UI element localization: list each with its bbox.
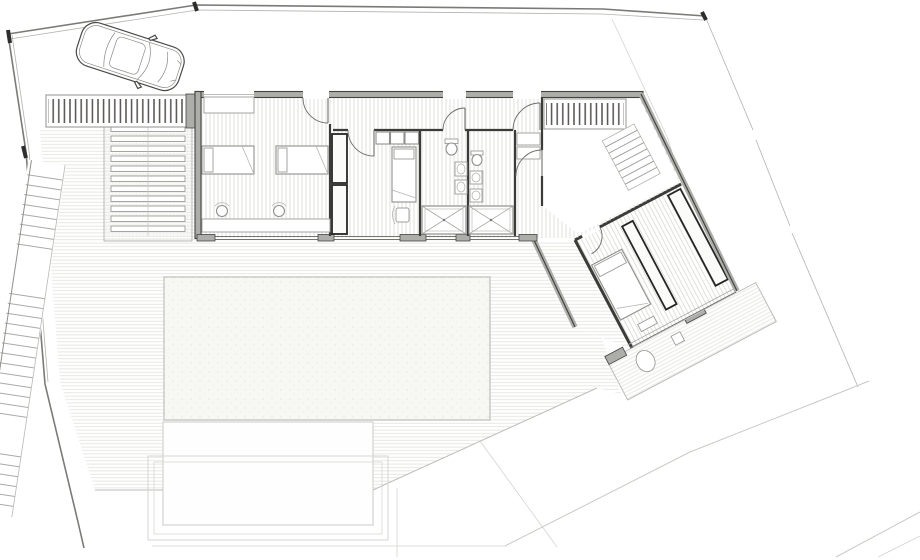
floor-plan-page — [0, 0, 920, 560]
single-bed — [202, 146, 254, 174]
louvered-ramp — [104, 117, 192, 241]
tall-wardrobe — [332, 134, 347, 183]
toilet — [445, 139, 458, 155]
boundary-corner-tick — [8, 30, 10, 43]
washbasin — [455, 180, 467, 194]
single-bed — [276, 146, 328, 174]
wall-west — [195, 92, 201, 239]
washbasin — [455, 162, 467, 176]
window-shelf — [204, 97, 254, 113]
washbasin — [470, 189, 482, 202]
pergola-slats-west — [46, 94, 196, 128]
overhead-cabinets — [376, 132, 419, 144]
shower — [422, 206, 466, 234]
car — [71, 13, 190, 99]
boundary-corner-tick — [194, 2, 197, 11]
floor-plan-drawing — [0, 0, 920, 560]
bed — [392, 147, 416, 202]
shower — [469, 206, 513, 234]
stair-landing — [11, 247, 52, 290]
washbasin — [470, 171, 482, 184]
tall-wardrobe — [332, 185, 347, 234]
swimming-pool — [164, 277, 490, 420]
desk — [202, 219, 330, 232]
lower-lawn — [163, 422, 373, 525]
garden-stairs — [0, 160, 66, 518]
boundary-corner-tick — [702, 12, 706, 20]
toilet — [471, 151, 483, 166]
pergola-slats-entry — [544, 99, 626, 129]
wall-north — [195, 92, 643, 98]
